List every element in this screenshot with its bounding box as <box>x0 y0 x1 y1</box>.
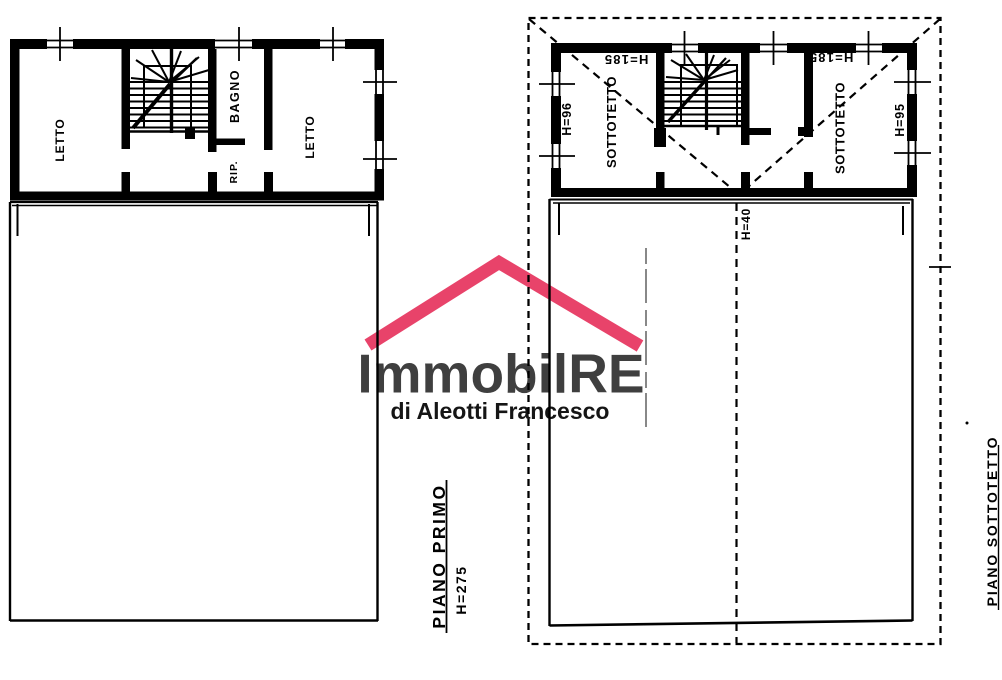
svg-text:H=275: H=275 <box>453 565 469 614</box>
svg-text:RIP.: RIP. <box>228 160 240 183</box>
svg-text:ImmobilRE: ImmobilRE <box>357 343 644 405</box>
svg-text:LETTO: LETTO <box>303 115 317 158</box>
svg-text:BAGNO: BAGNO <box>228 69 242 123</box>
svg-text:di Aleotti Francesco: di Aleotti Francesco <box>391 398 610 424</box>
svg-text:SOTTOTETTO: SOTTOTETTO <box>833 82 848 174</box>
svg-text:PIANO SOTTOTETTO: PIANO SOTTOTETTO <box>984 436 1000 607</box>
svg-text:H=95: H=95 <box>893 103 907 136</box>
svg-text:LETTO: LETTO <box>53 118 67 161</box>
svg-text:H=185: H=185 <box>809 50 854 65</box>
svg-text:SOTTOTETTO: SOTTOTETTO <box>604 76 619 168</box>
svg-text:H=185: H=185 <box>604 52 649 67</box>
svg-text:H=40: H=40 <box>739 208 753 240</box>
svg-text:H=96: H=96 <box>560 102 574 135</box>
